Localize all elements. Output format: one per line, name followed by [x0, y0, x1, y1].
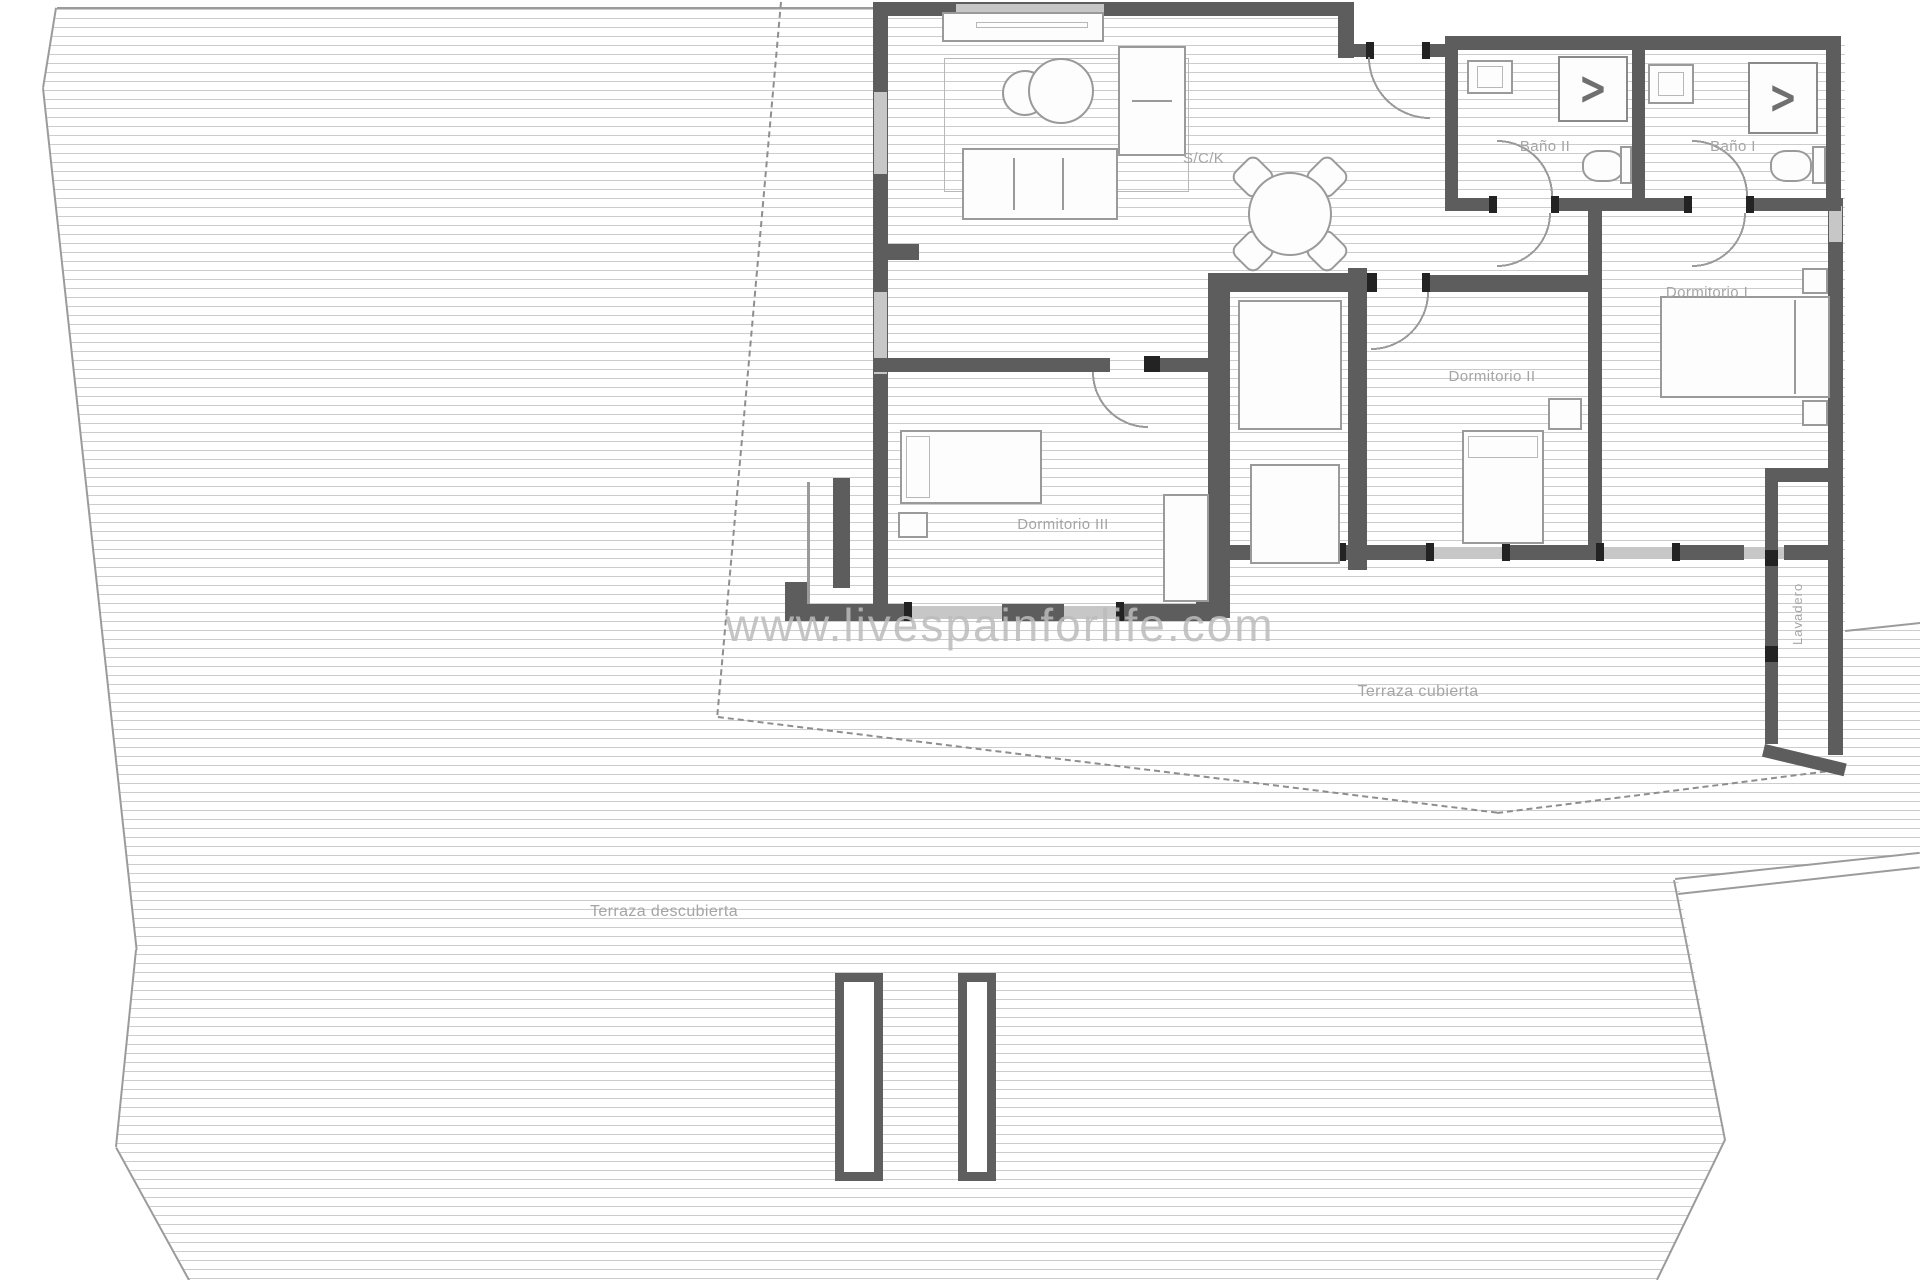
- sofa-divider-1: [1013, 158, 1015, 210]
- door-jamb: [1672, 543, 1680, 561]
- wall-closet-top: [1230, 273, 1350, 292]
- door-jamb: [1502, 543, 1510, 561]
- sofa-divider-2: [1062, 158, 1064, 210]
- floor-plan: > > S/C/K Baño II Baño I Dormitorio I Do…: [0, 0, 1920, 1280]
- closet-hall-2: [1250, 464, 1340, 564]
- porch-rail-line: [807, 482, 810, 604]
- sink-basin: [1658, 72, 1684, 96]
- hall-door-arc-2: [1692, 213, 1746, 267]
- shower-tray: >: [1558, 56, 1628, 122]
- toilet-tank: [1620, 146, 1632, 184]
- room-label-dorm2: Dormitorio II: [1412, 368, 1572, 385]
- door-jamb: [1367, 273, 1377, 292]
- dorm3-door-arc: [1092, 372, 1148, 428]
- room-label-dorm3: Dormitorio III: [983, 516, 1143, 533]
- wall-pillar: [873, 244, 919, 260]
- nightstand: [1548, 398, 1582, 430]
- dorm2-door-arc: [1371, 292, 1429, 350]
- wall-lavadero-right: [1828, 643, 1843, 755]
- door-jamb: [1684, 196, 1692, 213]
- terrace-planter-1: [835, 973, 883, 1181]
- wall-right: [1828, 198, 1843, 643]
- room-label-bano2: Baño II: [1495, 138, 1595, 155]
- wall-dorm3-top-stub: [1160, 358, 1208, 372]
- toilet-tank: [1812, 146, 1826, 184]
- wall-south-bedrooms-4: [1680, 545, 1744, 560]
- wall-bath-mid: [1632, 36, 1645, 210]
- window-south-3: [1604, 547, 1680, 559]
- door-jamb: [1596, 543, 1604, 561]
- wall-south-bedrooms-3: [1510, 545, 1604, 560]
- nightstand: [1802, 400, 1828, 426]
- armchair-line: [1132, 100, 1172, 102]
- tv-cabinet-slit: [976, 22, 1088, 28]
- closet-hall-1: [1238, 300, 1342, 430]
- door-jamb: [1765, 550, 1778, 566]
- wall-bath1-bottom-right: [1754, 198, 1841, 211]
- door-jamb: [1551, 196, 1559, 213]
- wall-dorm1-dorm2: [1588, 211, 1602, 545]
- sofa: [962, 148, 1118, 220]
- coffee-table: [1028, 58, 1094, 124]
- door-jamb: [1422, 273, 1430, 292]
- wall-dorm2-top: [1430, 275, 1588, 292]
- bed-dorm1-headboard-line: [1794, 300, 1796, 394]
- watermark-text: www.livespainforlife.com: [610, 598, 1390, 652]
- nightstand: [1802, 268, 1828, 294]
- terrace-planter-2: [958, 973, 996, 1181]
- wall-south-bedrooms-2: [1346, 545, 1434, 560]
- hall-door-arc-1: [1497, 213, 1551, 267]
- wardrobe-dorm3: [1163, 494, 1209, 602]
- shower-icon: >: [1769, 71, 1798, 125]
- plot-edge-top: [57, 7, 879, 9]
- sink-basin: [1477, 66, 1503, 88]
- room-label-bano1: Baño I: [1683, 138, 1783, 155]
- wall-lavadero-left: [1765, 468, 1778, 744]
- window-right: [1829, 206, 1842, 242]
- room-label-dorm1: Dormitorio I: [1627, 284, 1787, 301]
- room-label-sck: S/C/K: [1183, 150, 1224, 167]
- shower-icon: >: [1579, 62, 1608, 116]
- wall-bath2-bottom-left: [1445, 198, 1489, 211]
- wall-bath2-bottom-right: [1559, 198, 1632, 211]
- wall-bath1-bottom-left: [1632, 198, 1684, 211]
- door-jamb: [1765, 646, 1778, 662]
- bed-dorm2-pillow: [1468, 436, 1538, 458]
- room-label-terraza-cubierta: Terraza cubierta: [1318, 683, 1518, 701]
- door-jamb: [1746, 196, 1754, 213]
- window-south-4: [1744, 547, 1784, 559]
- door-jamb: [1144, 356, 1160, 372]
- wall-bath-left: [1445, 36, 1458, 210]
- bed-dorm1: [1660, 296, 1830, 398]
- wall-closet-right: [1348, 268, 1367, 570]
- room-label-terraza-descubierta: Terraza descubierta: [544, 903, 784, 921]
- wall-porch: [833, 478, 850, 588]
- wall-dorm3-top: [873, 358, 1110, 372]
- window-south-2: [1434, 547, 1510, 559]
- bed-dorm3-pillow: [906, 436, 930, 498]
- window-left-1: [874, 92, 887, 174]
- entry-door-arc: [1368, 57, 1430, 119]
- wall-bath-right: [1826, 36, 1841, 210]
- door-jamb: [1426, 543, 1434, 561]
- shower-tray: >: [1748, 62, 1818, 134]
- door-jamb: [1489, 196, 1497, 213]
- dining-table: [1248, 172, 1332, 256]
- wall-entry-left: [1346, 44, 1368, 57]
- room-label-lavadero: Lavadero: [1790, 555, 1805, 645]
- nightstand: [898, 512, 928, 538]
